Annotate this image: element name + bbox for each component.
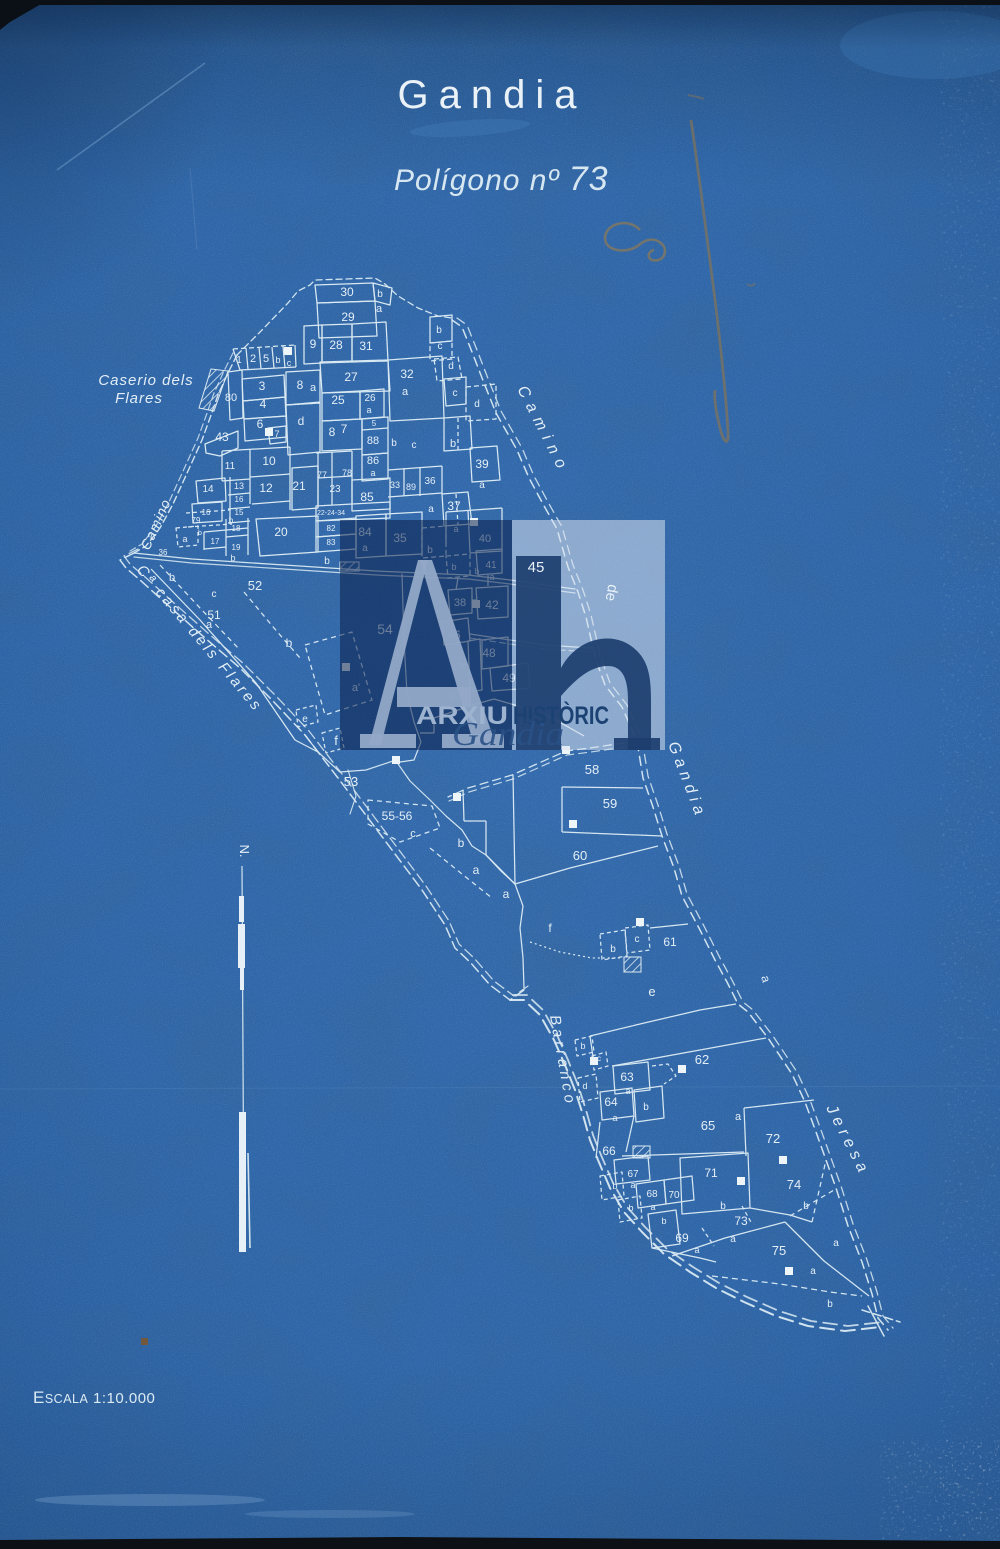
svg-text:71: 71 [704,1166,718,1180]
svg-text:36: 36 [424,476,436,487]
svg-text:29: 29 [341,310,355,324]
svg-text:b: b [275,355,280,365]
svg-text:39: 39 [475,457,489,471]
svg-text:68: 68 [646,1189,658,1200]
svg-text:b: b [458,836,465,850]
svg-text:72: 72 [766,1131,780,1146]
svg-text:c: c [635,934,640,945]
svg-text:a: a [810,1266,816,1277]
svg-text:a: a [376,303,383,315]
svg-text:2: 2 [250,353,256,365]
svg-text:a: a [182,534,187,544]
svg-text:a: a [428,504,434,515]
svg-text:18: 18 [232,524,241,533]
svg-text:c: c [453,388,458,399]
svg-text:21: 21 [292,479,306,493]
svg-text:b: b [612,1181,617,1191]
svg-text:10: 10 [262,454,276,468]
svg-text:a: a [630,1180,635,1190]
svg-text:65: 65 [701,1118,715,1133]
svg-text:b: b [377,289,383,300]
svg-text:16: 16 [202,508,211,517]
svg-text:b: b [803,1201,809,1212]
svg-text:b: b [230,553,235,563]
svg-text:Flares: Flares [115,390,163,407]
svg-text:c: c [597,1054,601,1063]
svg-text:1: 1 [236,355,242,366]
svg-text:4: 4 [260,397,267,411]
svg-text:Gandia: Gandia [452,716,564,753]
svg-text:a: a [206,619,213,631]
svg-text:37: 37 [447,499,461,513]
svg-text:c: c [212,589,217,600]
svg-text:a: a [694,1245,699,1255]
svg-text:86: 86 [367,455,379,467]
svg-text:30: 30 [340,285,354,299]
svg-text:a: a [366,405,371,415]
svg-text:a: a [612,1113,617,1123]
svg-text:a: a [833,1238,839,1249]
svg-text:22-24-34: 22-24-34 [317,510,345,517]
svg-text:a: a [625,1086,630,1096]
svg-text:31: 31 [359,339,373,353]
svg-text:32: 32 [400,367,414,381]
svg-text:a: a [310,382,317,394]
svg-text:19: 19 [232,543,241,552]
svg-text:Polígono nº 73: Polígono nº 73 [394,160,609,198]
svg-text:b: b [628,1203,633,1213]
svg-text:85: 85 [360,490,374,504]
svg-text:89: 89 [406,482,416,492]
svg-text:a: a [479,480,485,491]
svg-text:43: 43 [215,430,229,444]
svg-text:63: 63 [620,1070,634,1084]
svg-text:55-56: 55-56 [382,809,413,823]
svg-text:82: 82 [327,524,336,533]
svg-text:5: 5 [372,419,377,428]
svg-text:80: 80 [225,392,237,404]
svg-text:12: 12 [259,481,273,495]
svg-text:78: 78 [342,468,352,478]
svg-text:75: 75 [772,1243,786,1258]
svg-text:23: 23 [329,484,341,495]
svg-text:57: 57 [519,716,535,732]
svg-text:83: 83 [327,538,336,547]
svg-text:c: c [287,358,292,368]
svg-text:15: 15 [235,508,244,517]
svg-text:a: a [503,887,510,901]
svg-text:b: b [610,944,616,955]
svg-text:b: b [198,530,202,537]
svg-text:a: a [370,468,375,478]
svg-text:66: 66 [602,1144,616,1158]
svg-text:52: 52 [248,578,262,593]
svg-text:b: b [391,438,397,449]
svg-text:79: 79 [192,516,201,525]
svg-text:a: a [402,386,409,398]
svg-text:b: b [661,1216,666,1226]
svg-text:3: 3 [259,379,266,393]
svg-text:45: 45 [528,559,545,576]
svg-text:Caserio dels: Caserio dels [98,372,193,389]
svg-text:33: 33 [390,480,400,490]
svg-text:b: b [169,572,175,584]
svg-text:b: b [286,636,293,650]
svg-text:e: e [648,984,655,999]
svg-text:9: 9 [310,337,317,351]
svg-text:b: b [720,1201,726,1212]
svg-text:25: 25 [331,393,345,407]
svg-text:8: 8 [329,425,336,439]
svg-text:74: 74 [787,1177,801,1192]
svg-text:a: a [735,1111,742,1123]
svg-text:28: 28 [329,338,343,352]
svg-text:N.: N. [237,845,252,858]
svg-text:a: a [650,1202,655,1212]
svg-text:59: 59 [603,796,617,811]
svg-text:c: c [438,341,443,352]
svg-text:d: d [298,414,305,428]
svg-text:70: 70 [668,1190,680,1201]
svg-text:64: 64 [604,1095,618,1109]
svg-text:d: d [474,399,480,410]
svg-text:7: 7 [341,422,348,436]
svg-text:13: 13 [234,481,244,491]
svg-text:de: de [602,583,622,602]
svg-text:27: 27 [344,370,358,384]
svg-text:26: 26 [364,393,376,404]
svg-text:e: e [302,714,308,725]
svg-text:77: 77 [317,470,327,480]
svg-text:7: 7 [274,429,279,439]
svg-text:58: 58 [585,762,599,777]
svg-text:20: 20 [274,525,288,539]
svg-text:36: 36 [159,548,168,557]
svg-text:73: 73 [734,1214,748,1228]
svg-text:67: 67 [627,1169,639,1180]
svg-text:61: 61 [663,935,677,949]
svg-text:a: a [473,863,480,877]
svg-text:b: b [436,325,442,336]
svg-text:b: b [450,438,456,450]
svg-text:b: b [580,1041,585,1051]
svg-text:88: 88 [367,435,379,447]
svg-text:8: 8 [297,378,304,392]
svg-text:b: b [827,1299,833,1310]
svg-text:6: 6 [257,417,264,431]
svg-text:62: 62 [695,1052,709,1067]
svg-text:b: b [324,556,330,567]
svg-text:b: b [643,1102,649,1113]
svg-text:d: d [582,1081,587,1091]
svg-text:c: c [410,828,416,840]
svg-text:60: 60 [573,848,587,863]
svg-text:16: 16 [235,495,244,504]
svg-text:14: 14 [202,484,214,495]
svg-text:a: a [730,1234,736,1245]
svg-text:f: f [334,733,338,748]
svg-text:53: 53 [344,774,358,789]
svg-text:5: 5 [263,353,269,365]
svg-text:Gandia: Gandia [398,73,587,117]
svg-text:11: 11 [225,461,236,472]
svg-text:69: 69 [675,1231,689,1245]
svg-text:d: d [448,361,454,372]
svg-text:c: c [412,440,417,451]
svg-text:17: 17 [211,537,220,546]
